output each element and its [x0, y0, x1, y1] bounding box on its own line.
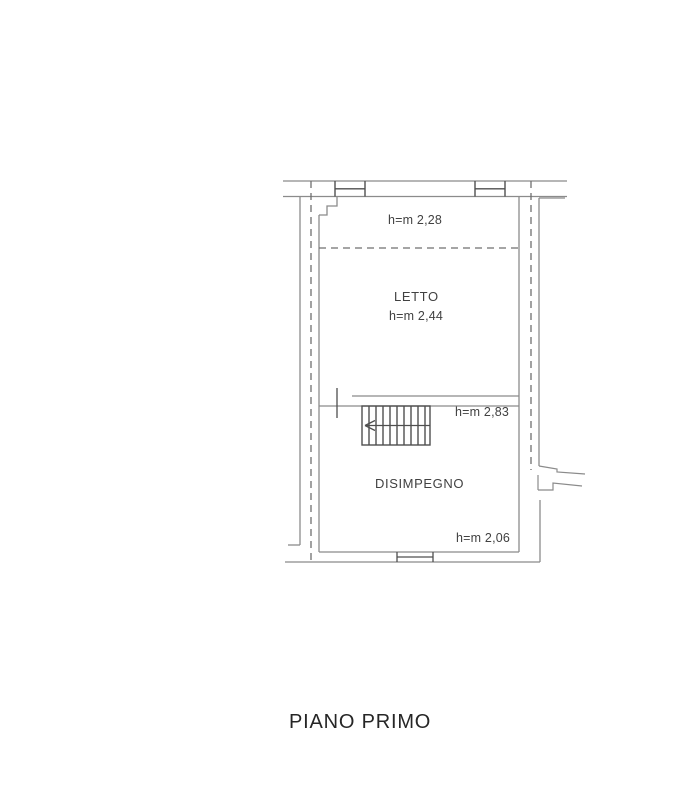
left-wall — [288, 197, 337, 552]
window-symbol-bottom — [397, 552, 433, 562]
right-wall — [519, 197, 565, 562]
dashed-projection-lines — [311, 181, 531, 560]
top-wall — [283, 181, 567, 197]
letto-upper-height-label: h=m 2,28 — [388, 214, 442, 227]
room-name-letto: LETTO — [394, 290, 439, 303]
floor-plan-drawing — [0, 0, 674, 800]
window-symbol-top-right — [475, 181, 505, 197]
room-name-disimpegno: DISIMPEGNO — [375, 477, 464, 490]
letto-height-label: h=m 2,44 — [389, 310, 443, 323]
stairs-height-label: h=m 2,83 — [455, 406, 509, 419]
wall-break-lines — [538, 466, 585, 490]
window-symbol-top-left — [335, 181, 365, 197]
disimpegno-height-label: h=m 2,06 — [456, 532, 510, 545]
floor-plan-page: h=m 2,28 LETTO h=m 2,44 h=m 2,83 DISIMPE… — [0, 0, 674, 800]
plan-title: PIANO PRIMO — [289, 711, 431, 734]
